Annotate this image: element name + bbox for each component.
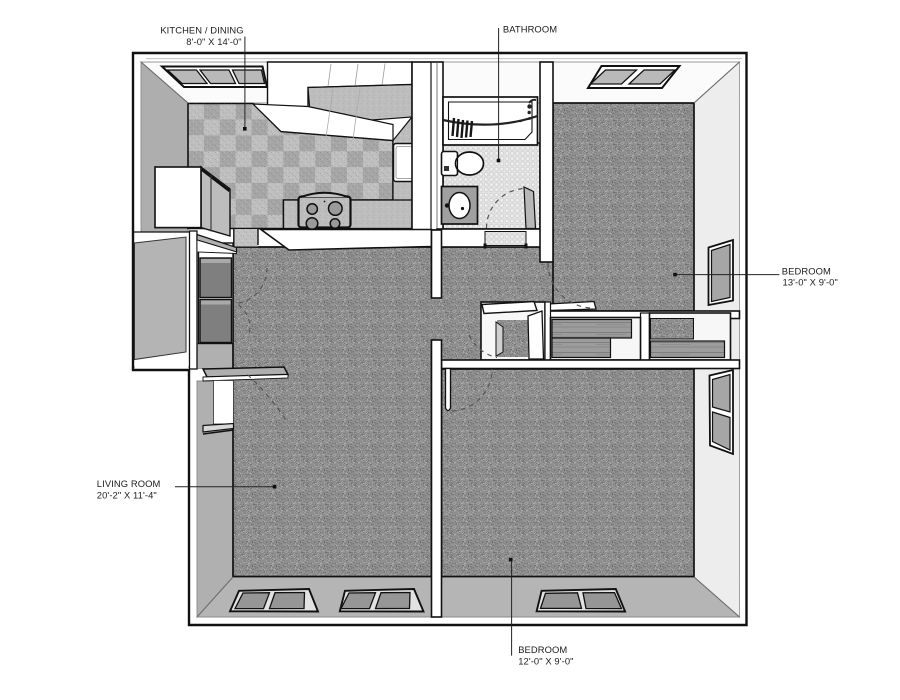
svg-text:BEDROOM: BEDROOM — [518, 644, 567, 655]
svg-text:BEDROOM: BEDROOM — [782, 265, 831, 276]
svg-text:20'-2" X 11'-4": 20'-2" X 11'-4" — [97, 490, 157, 501]
svg-text:13'-0" X 9'-0": 13'-0" X 9'-0" — [783, 277, 838, 288]
svg-text:KITCHEN / DINING: KITCHEN / DINING — [160, 24, 243, 35]
svg-text:LIVING ROOM: LIVING ROOM — [97, 478, 161, 489]
svg-text:12'-0" X 9'-0": 12'-0" X 9'-0" — [518, 655, 573, 666]
svg-text:8'-0" X 14'-0": 8'-0" X 14'-0" — [186, 36, 241, 47]
svg-text:BATHROOM: BATHROOM — [503, 24, 557, 35]
